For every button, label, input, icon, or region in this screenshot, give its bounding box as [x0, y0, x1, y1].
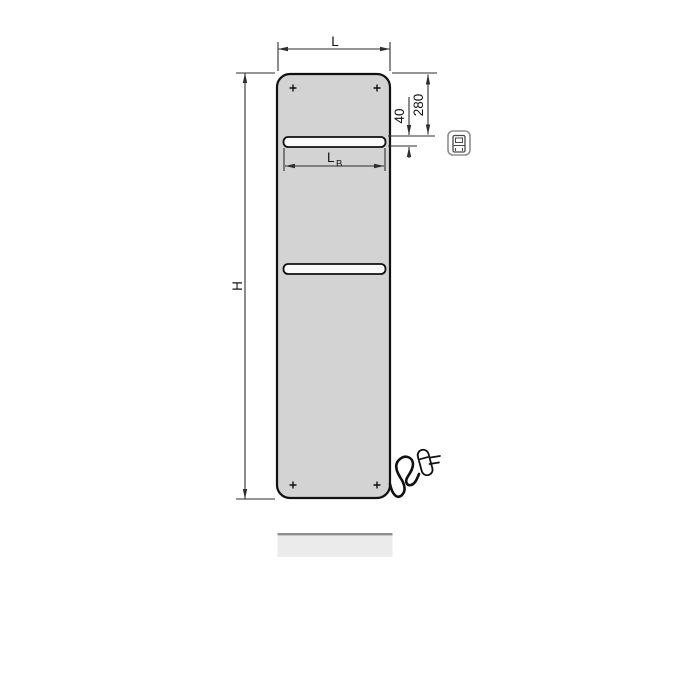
towel-bar-middle [284, 264, 386, 274]
dimension-top-offset: 280 [388, 73, 437, 136]
power-plug-icon [416, 449, 440, 477]
diagram-canvas: L H 280 40 L B [0, 0, 700, 700]
bar-width-label: L [327, 150, 335, 165]
towel-bar-top [284, 137, 386, 147]
power-cord [390, 449, 440, 497]
height-label: H [230, 281, 245, 291]
floor-reflection [278, 533, 393, 557]
bar-width-sub-label: B [336, 159, 342, 170]
dimension-height: H [230, 73, 275, 499]
top-offset-label: 280 [411, 94, 426, 117]
width-label: L [331, 34, 339, 49]
control-unit-icon [448, 131, 470, 155]
technical-drawing: L H 280 40 L B [0, 0, 700, 700]
dimension-width: L [278, 34, 390, 71]
bar-thickness-label: 40 [392, 108, 407, 123]
